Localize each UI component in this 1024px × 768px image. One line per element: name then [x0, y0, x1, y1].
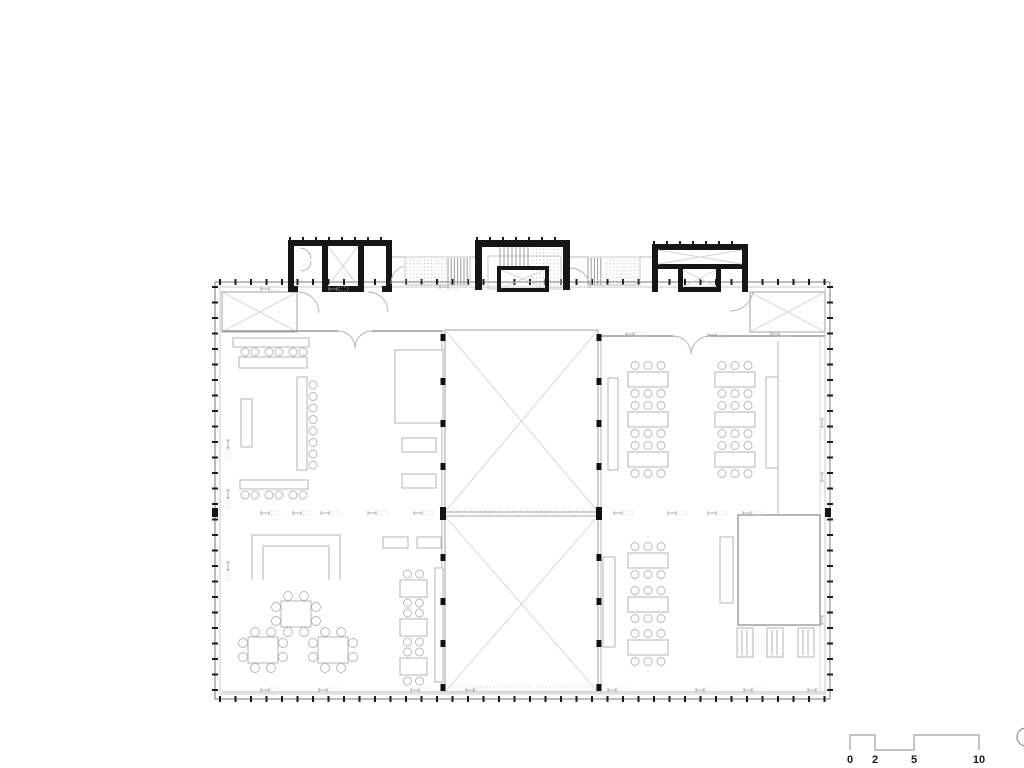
- dash-band: [513, 510, 517, 516]
- chair: [731, 390, 739, 398]
- stool: [299, 491, 307, 499]
- core-wall: [658, 264, 742, 269]
- chair: [321, 628, 330, 637]
- mullion-tick: [638, 696, 640, 702]
- mullion-tick: [824, 279, 826, 285]
- dash-band: [464, 510, 468, 516]
- scale-bar: 0 2 5 10: [847, 735, 985, 766]
- mullion-tick: [212, 379, 218, 381]
- radiator-symbol: [696, 688, 715, 692]
- mullion-tick: [212, 395, 218, 397]
- chair: [404, 599, 412, 607]
- radiator-symbol: [608, 688, 627, 692]
- dash-band: [576, 510, 580, 516]
- table-four-seat: [400, 619, 427, 636]
- mullion-tick: [212, 550, 218, 552]
- mullion-tick: [250, 696, 252, 702]
- radiator-symbol: [293, 511, 312, 515]
- mullion-tick: [212, 410, 218, 412]
- column-mark-large: [596, 507, 602, 520]
- chair: [284, 592, 293, 601]
- chair: [644, 402, 652, 410]
- column-mark: [597, 640, 602, 647]
- chair: [644, 587, 652, 595]
- chair: [337, 664, 346, 673]
- counter: [417, 537, 441, 548]
- mullion-tick: [212, 581, 218, 583]
- dash-band: [569, 510, 573, 516]
- counter: [603, 557, 615, 647]
- mullion-tick: [498, 696, 500, 702]
- mullion-tick: [827, 348, 833, 350]
- mullion-tick: [576, 279, 578, 285]
- stool: [289, 348, 297, 356]
- stool: [309, 439, 317, 447]
- chair: [718, 362, 726, 370]
- scale-label-2: 2: [872, 754, 878, 766]
- mullion-tick: [653, 696, 655, 702]
- mullion-tick: [212, 457, 218, 459]
- mullion-tick: [312, 279, 314, 285]
- chair: [657, 470, 665, 478]
- void-x-areas: [222, 292, 825, 692]
- dash-band: [571, 686, 575, 691]
- radiator-symbol: [744, 688, 763, 692]
- floor-plan-drawing: 0 2 5 10: [0, 0, 1024, 768]
- dash-band: [583, 510, 587, 516]
- north-arrow-fragment: [1017, 728, 1024, 746]
- chair: [631, 402, 639, 410]
- dash-band: [562, 510, 566, 516]
- table-eight-seat: [318, 637, 348, 663]
- mullion-tick: [359, 696, 361, 702]
- chair: [631, 430, 639, 438]
- radiator-symbol: [668, 511, 687, 515]
- dash-band: [478, 510, 482, 516]
- dash-band: [459, 686, 463, 691]
- chair: [321, 664, 330, 673]
- stool: [309, 404, 317, 412]
- core-wall: [358, 246, 364, 286]
- chair: [644, 571, 652, 579]
- mullion-tick: [607, 696, 609, 702]
- table-six-seat: [628, 553, 668, 568]
- radiator-symbol: [820, 473, 824, 492]
- mullion-tick: [827, 472, 833, 474]
- mullion-tick: [281, 279, 283, 285]
- radiator-symbol: [319, 688, 338, 692]
- mullion-tick: [467, 696, 469, 702]
- table-six-seat: [628, 412, 668, 427]
- mullion-tick: [827, 286, 833, 288]
- stool: [299, 348, 307, 356]
- door-arc: [391, 266, 404, 284]
- chair: [631, 571, 639, 579]
- chair: [631, 543, 639, 551]
- chair: [631, 615, 639, 623]
- stair-landing-hatch: [604, 258, 640, 285]
- dash-band: [494, 686, 498, 691]
- mullion-tick: [827, 596, 833, 598]
- chair: [744, 402, 752, 410]
- counter: [239, 357, 307, 368]
- mullion-tick: [622, 696, 624, 702]
- dash-band: [541, 510, 545, 516]
- chair: [644, 390, 652, 398]
- dash-band: [492, 510, 496, 516]
- mullion-tick: [343, 696, 345, 702]
- mullion-tick: [560, 696, 562, 702]
- chair: [416, 570, 424, 578]
- scale-label-0: 0: [847, 754, 853, 766]
- dash-band: [499, 510, 503, 516]
- chair: [657, 362, 665, 370]
- mullion-tick: [452, 279, 454, 285]
- room-outline: [738, 515, 820, 625]
- chair: [284, 628, 293, 637]
- mullion-tick: [212, 565, 218, 567]
- chair: [657, 587, 665, 595]
- table-six-seat: [715, 372, 755, 387]
- north-marker-fragment: [1017, 728, 1024, 746]
- mullion-tick: [374, 279, 376, 285]
- mullion-tick: [827, 658, 833, 660]
- chair: [300, 628, 309, 637]
- mullion-tick: [212, 658, 218, 660]
- table-six-seat: [628, 597, 668, 612]
- chair: [349, 653, 358, 662]
- mullion-tick: [793, 279, 795, 285]
- stool: [309, 393, 317, 401]
- mullion-tick: [212, 674, 218, 676]
- mullion-tick: [827, 519, 833, 521]
- chair: [631, 658, 639, 666]
- core-wall: [678, 287, 721, 292]
- stool: [251, 491, 259, 499]
- mat-box: [737, 628, 753, 657]
- core-wall: [497, 288, 549, 292]
- chair: [267, 664, 276, 673]
- dash-band: [578, 686, 582, 691]
- stool: [265, 491, 273, 499]
- core-wall: [288, 240, 392, 246]
- core-wall: [497, 266, 549, 270]
- mullion-tick: [808, 696, 810, 702]
- stool: [309, 381, 317, 389]
- mullion-tick: [212, 534, 218, 536]
- chair: [731, 402, 739, 410]
- table-four-seat: [400, 580, 427, 597]
- counter: [240, 480, 308, 489]
- chair: [416, 638, 424, 646]
- chair: [272, 603, 281, 612]
- dash-band: [457, 510, 461, 516]
- chair: [416, 599, 424, 607]
- door-arc: [298, 292, 319, 313]
- mullion-tick: [297, 279, 299, 285]
- mullion-tick: [827, 689, 833, 691]
- column-mark: [597, 598, 602, 605]
- core-wall: [652, 244, 658, 292]
- radiator-symbol: [321, 511, 340, 515]
- chair: [657, 430, 665, 438]
- table-four-seat: [400, 658, 427, 675]
- chair: [279, 639, 288, 648]
- mullion-tick: [212, 364, 218, 366]
- radiator-symbol: [466, 688, 485, 692]
- stool: [309, 416, 317, 424]
- stool: [265, 348, 273, 356]
- dash-band: [480, 686, 484, 691]
- radiator-symbol: [708, 511, 727, 515]
- door-arc: [570, 268, 590, 288]
- mat-box: [767, 628, 783, 657]
- column-mark: [597, 463, 602, 470]
- door-arc: [338, 331, 355, 348]
- mullion-tick: [827, 488, 833, 490]
- core-wall: [212, 508, 218, 517]
- core-wall: [825, 508, 831, 517]
- chair: [279, 653, 288, 662]
- counter: [608, 378, 618, 470]
- mullion-tick: [212, 286, 218, 288]
- stool: [241, 348, 249, 356]
- radiator-symbol: [414, 511, 433, 515]
- radiator-symbol: [820, 419, 824, 438]
- mullion-tick: [212, 426, 218, 428]
- table-six-seat: [628, 372, 668, 387]
- stool: [309, 427, 317, 435]
- mullion-tick: [669, 696, 671, 702]
- mullion-tick: [827, 333, 833, 335]
- mullion-tick: [235, 696, 237, 702]
- chair: [744, 442, 752, 450]
- chair: [657, 543, 665, 551]
- chair: [657, 390, 665, 398]
- mullion-tick: [250, 279, 252, 285]
- column-mark: [597, 684, 602, 691]
- mullion-tick: [700, 696, 702, 702]
- table-six-seat: [715, 412, 755, 427]
- core-wall: [652, 244, 748, 250]
- mullion-tick: [281, 696, 283, 702]
- mullion-tick: [731, 696, 733, 702]
- stool: [251, 348, 259, 356]
- mullion-tick: [827, 317, 833, 319]
- mullion-tick: [545, 696, 547, 702]
- chair: [744, 430, 752, 438]
- chair: [731, 442, 739, 450]
- door-swing-arcs: [298, 248, 753, 354]
- core-wall: [386, 240, 392, 292]
- mullion-tick: [731, 279, 733, 285]
- mullion-tick: [700, 279, 702, 285]
- mullion-tick: [266, 696, 268, 702]
- radiator-symbol: [808, 688, 827, 692]
- chair: [416, 648, 424, 656]
- door-arc: [691, 336, 710, 354]
- chair: [251, 664, 260, 673]
- mullion-tick: [212, 596, 218, 598]
- radiator-symbol: [261, 688, 280, 692]
- chair: [300, 592, 309, 601]
- mullion-tick: [212, 472, 218, 474]
- dash-band: [485, 510, 489, 516]
- dash-band: [471, 510, 475, 516]
- counter: [402, 474, 436, 488]
- chair: [631, 390, 639, 398]
- column-mark: [441, 378, 446, 385]
- door-arc: [301, 261, 311, 271]
- chair: [312, 603, 321, 612]
- mullion-tick: [827, 441, 833, 443]
- dash-band: [506, 510, 510, 516]
- radiator-symbol: [226, 562, 230, 581]
- mullion-tick: [824, 696, 826, 702]
- chair: [644, 615, 652, 623]
- mullion-tick: [421, 696, 423, 702]
- scale-bar-line: [850, 735, 979, 750]
- radiator-symbol: [261, 287, 280, 291]
- mullion-tick: [827, 410, 833, 412]
- radiator-symbol: [226, 490, 230, 509]
- table-eight-seat: [281, 601, 311, 627]
- core-wall: [475, 240, 570, 247]
- mullion-tick: [827, 379, 833, 381]
- chair: [731, 470, 739, 478]
- mullion-tick: [212, 441, 218, 443]
- chair: [404, 677, 412, 685]
- chair: [644, 658, 652, 666]
- column-mark: [441, 598, 446, 605]
- chair: [718, 430, 726, 438]
- facade-inner: [220, 287, 825, 694]
- mullion-tick: [827, 612, 833, 614]
- radiator-symbol: [368, 511, 387, 515]
- mullion-tick: [212, 519, 218, 521]
- column-mark: [441, 640, 446, 647]
- chair: [657, 402, 665, 410]
- chair: [349, 639, 358, 648]
- door-arc: [368, 292, 388, 312]
- chair: [718, 390, 726, 398]
- mullion-tick: [212, 627, 218, 629]
- dash-band: [557, 686, 561, 691]
- chair: [731, 430, 739, 438]
- dash-band: [590, 510, 594, 516]
- chair: [404, 609, 412, 617]
- chair: [631, 630, 639, 638]
- column-mark: [597, 420, 602, 427]
- column-mark: [597, 378, 602, 385]
- mullion-tick: [715, 696, 717, 702]
- mullion-tick: [827, 550, 833, 552]
- chair: [644, 430, 652, 438]
- mullion-tick: [827, 426, 833, 428]
- radiator-symbol: [411, 688, 430, 692]
- dash-band: [548, 510, 552, 516]
- mullion-tick: [827, 395, 833, 397]
- counter: [766, 377, 778, 468]
- chair: [631, 442, 639, 450]
- dash-band: [501, 686, 505, 691]
- mullion-tick: [390, 696, 392, 702]
- mullion-tick: [212, 333, 218, 335]
- u-shaped-counter: [252, 535, 340, 580]
- mullion-tick: [808, 279, 810, 285]
- chair: [631, 362, 639, 370]
- mullion-tick: [827, 302, 833, 304]
- chair: [644, 470, 652, 478]
- mullion-tick: [212, 612, 218, 614]
- dash-band: [536, 686, 540, 691]
- stool: [275, 348, 283, 356]
- mullion-tick: [827, 503, 833, 505]
- mullion-tick: [576, 696, 578, 702]
- core-wall: [742, 244, 748, 292]
- chair: [718, 442, 726, 450]
- chair: [416, 677, 424, 685]
- chair: [644, 543, 652, 551]
- dash-band: [534, 510, 538, 516]
- column-mark: [441, 684, 446, 691]
- dash-band: [555, 510, 559, 516]
- mat-box: [798, 628, 814, 657]
- dash-band: [450, 510, 454, 516]
- chair: [239, 639, 248, 648]
- mullion-tick: [212, 488, 218, 490]
- core-wall: [288, 286, 298, 292]
- stool: [309, 450, 317, 458]
- mullion-tick: [762, 696, 764, 702]
- mullion-tick: [212, 302, 218, 304]
- chair: [404, 570, 412, 578]
- column-mark: [441, 554, 446, 561]
- chair: [312, 617, 321, 626]
- mullion-tick: [669, 279, 671, 285]
- mullion-tick: [483, 696, 485, 702]
- table-eight-seat: [248, 637, 278, 663]
- chair: [272, 617, 281, 626]
- dash-band: [520, 510, 524, 516]
- chair: [251, 628, 260, 637]
- chair: [309, 653, 318, 662]
- chair: [657, 571, 665, 579]
- column-mark-large: [440, 507, 446, 520]
- dash-band: [543, 686, 547, 691]
- core-wall: [288, 240, 294, 292]
- core-wall: [563, 240, 570, 290]
- chair: [309, 639, 318, 648]
- chair: [631, 587, 639, 595]
- scale-label-10: 10: [973, 754, 985, 766]
- dash-band: [527, 510, 531, 516]
- dash-band: [564, 686, 568, 691]
- door-arc: [300, 248, 311, 259]
- dash-band: [452, 686, 456, 691]
- chair: [404, 648, 412, 656]
- chair: [404, 638, 412, 646]
- mullion-tick: [328, 696, 330, 702]
- chair: [657, 630, 665, 638]
- mullion-tick: [374, 696, 376, 702]
- mullion-tick: [219, 279, 221, 285]
- table-six-seat: [628, 452, 668, 467]
- mullion-tick: [212, 503, 218, 505]
- mullion-tick: [405, 696, 407, 702]
- mullion-tick: [235, 279, 237, 285]
- mullion-tick: [684, 279, 686, 285]
